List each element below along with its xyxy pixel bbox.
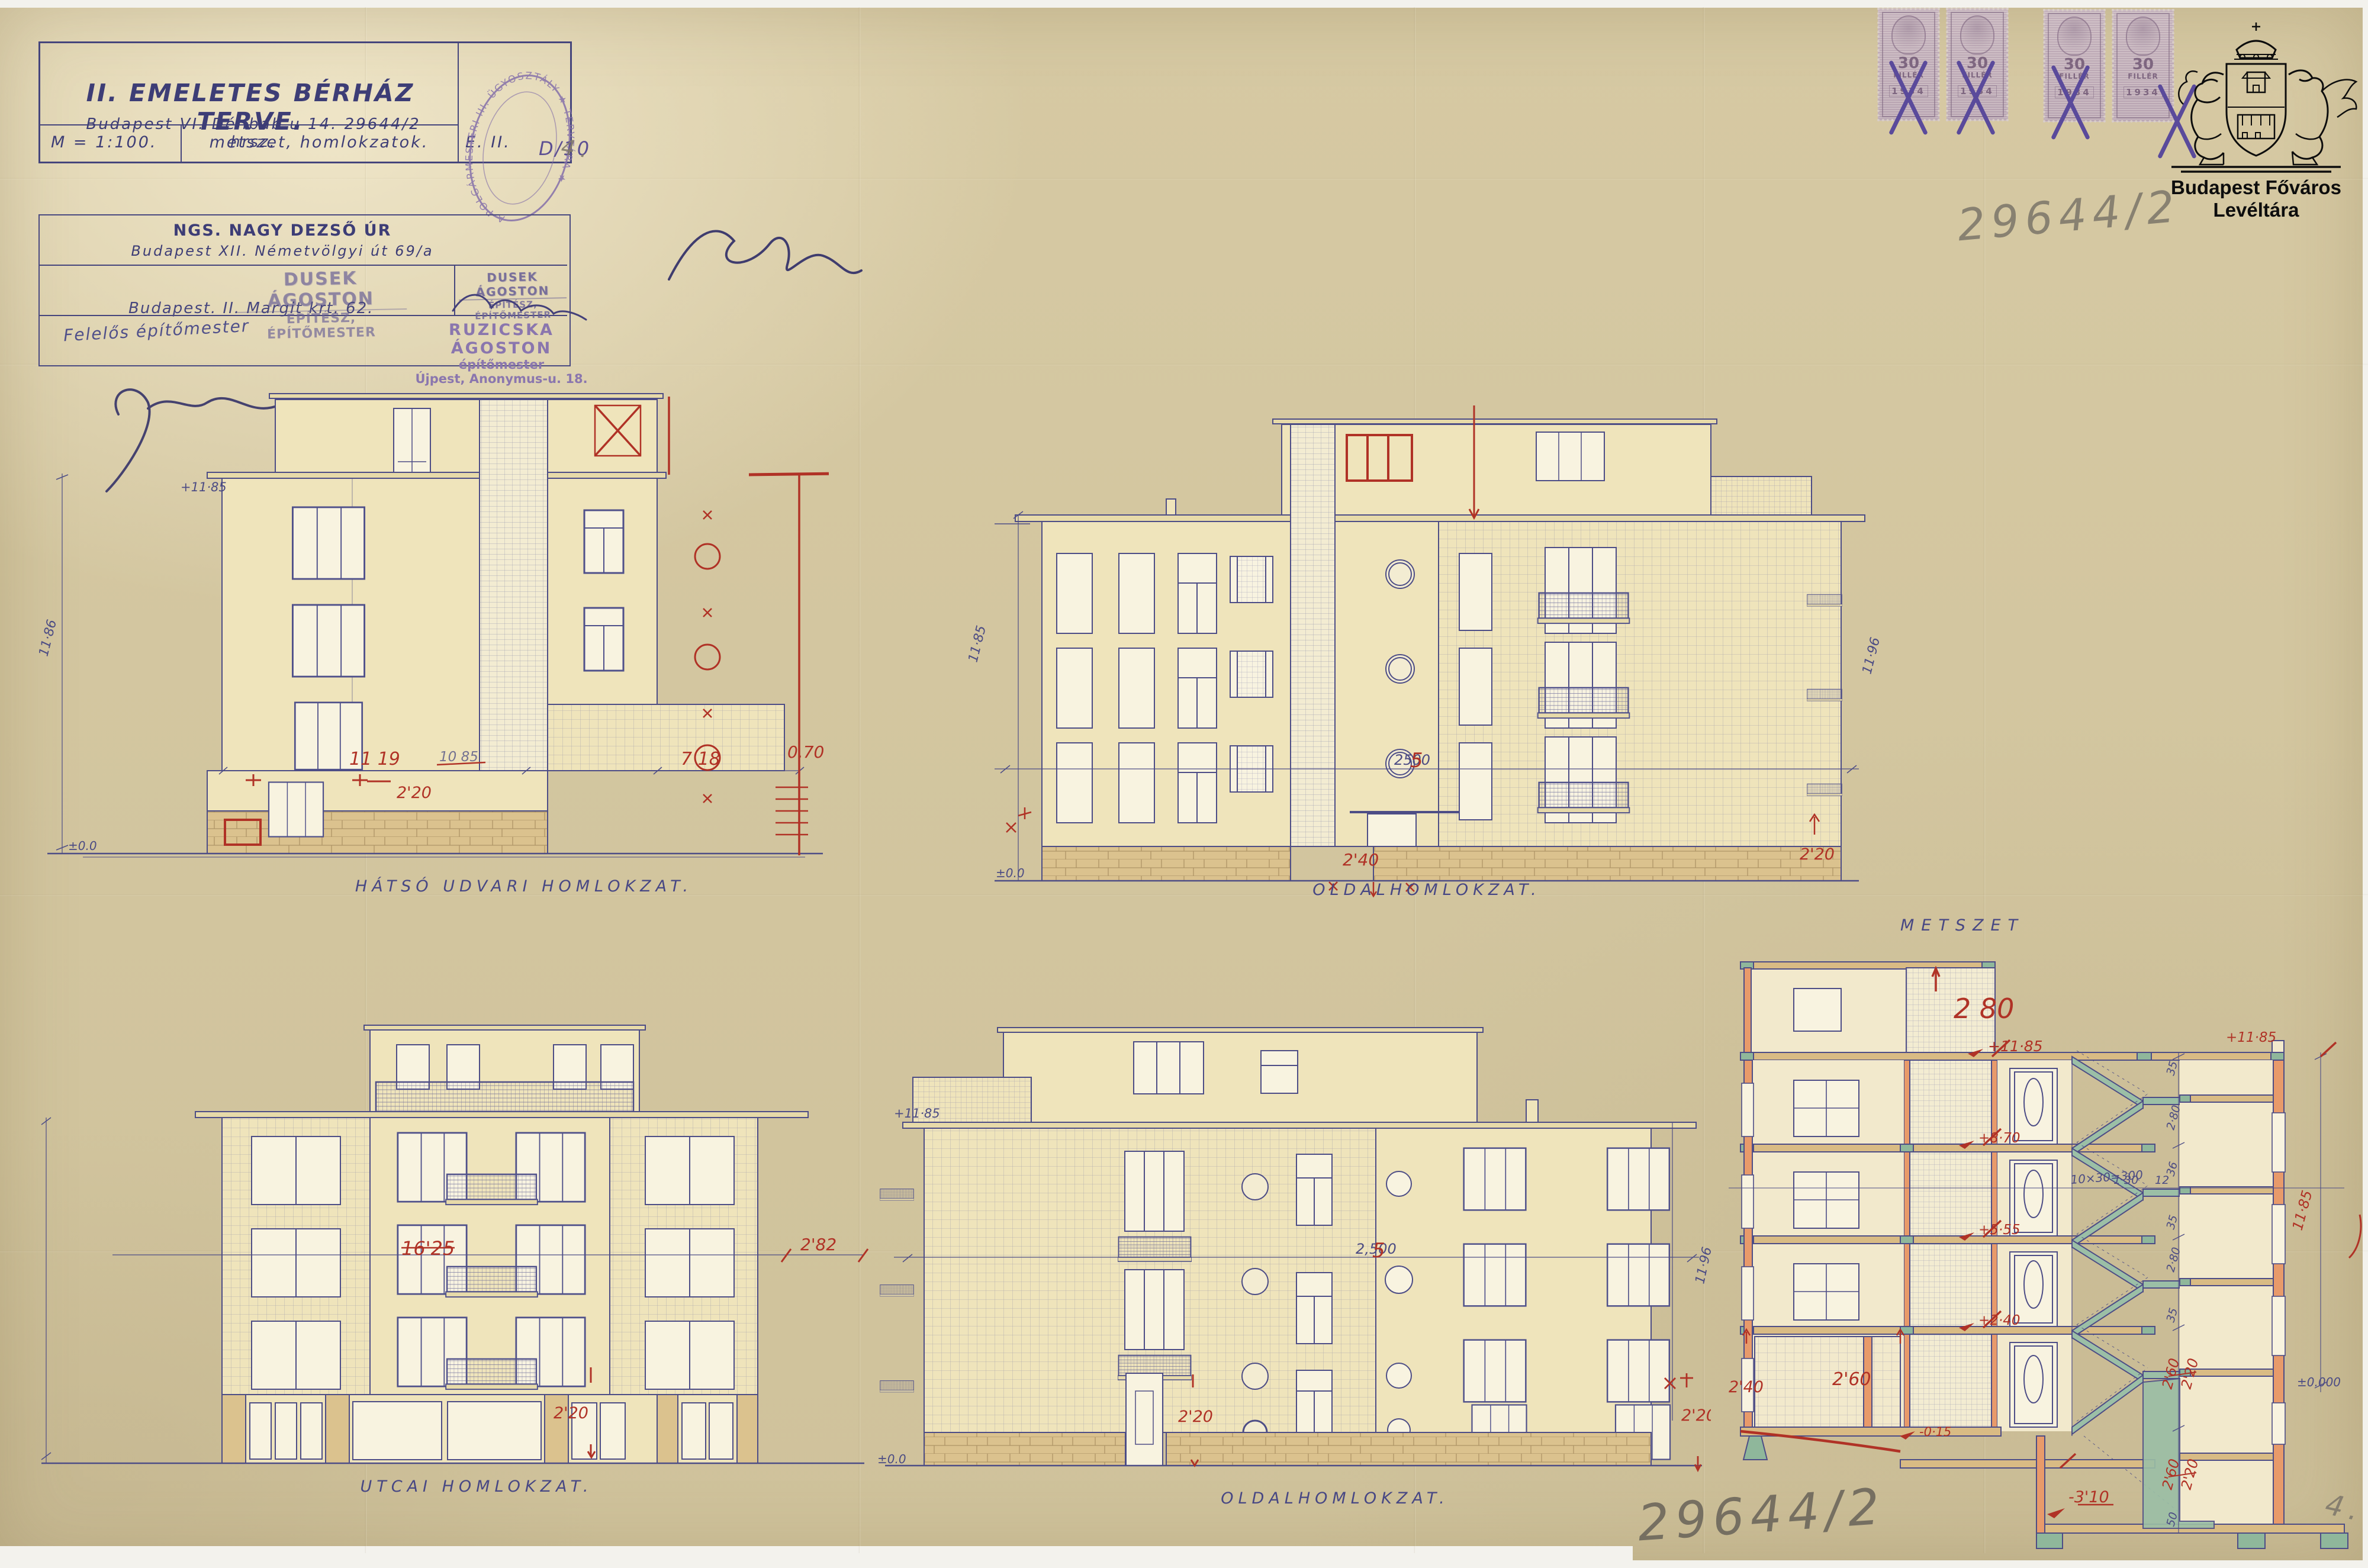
plan-scale: M = 1:100.: [51, 133, 157, 152]
street-dim-right: 2'82: [800, 1235, 836, 1254]
street-dim-shop: 2'20: [554, 1404, 588, 1422]
client-address: Budapest XII. Németvölgyi út 69/a: [111, 243, 454, 259]
section-level-top-right: +11·85: [2226, 1030, 2276, 1045]
rear-height-left: 11·86: [37, 618, 60, 658]
side-top-height-left: 11·85: [966, 624, 989, 664]
side-top-dim-right: 2'20: [1800, 845, 1835, 864]
svg-text:35: 35: [2164, 1060, 2181, 1077]
side-elevation-bottom-caption: OLDALHOMLOKZAT.: [1178, 1489, 1492, 1508]
scan-edge-top: [0, 0, 2368, 8]
rear-elevation-drawing: +11·85 11·86 ±0.0 11 19 10 85 7 18 0.70 …: [12, 373, 829, 882]
svg-text:35: 35: [2164, 1213, 2181, 1231]
pencil-sheet-number: 4.: [559, 135, 595, 163]
scanned-plan-sheet: { "archive": { "institution": "Budapest …: [0, 0, 2368, 1568]
side-elevation-bottom-drawing: +11·85 ±0.0 11·96 2,500 5 2'20 2'20: [870, 1006, 1711, 1498]
cancel-x-mark: [1886, 59, 1930, 136]
section-height-right: 11·85: [2289, 1189, 2316, 1232]
rear-dim-b: 7 18: [681, 749, 720, 769]
scan-edge-bottom-left: [0, 1546, 1633, 1568]
rear-elevation-caption: HÁTSÓ UDVARI HOMLOKZAT.: [346, 877, 702, 896]
stamp-crest: [1891, 15, 1926, 54]
section-level-ground: -0·15: [1919, 1425, 1951, 1439]
side-bottom-dim-fix: 5: [1372, 1239, 1385, 1263]
section-drawing: 2 80 +11·85 +8·70 +5·55 +2·40 -0·15 -3'1…: [1705, 935, 2368, 1551]
rear-ground-level: ±0.0: [68, 839, 97, 853]
stamp-crest: [2057, 17, 2092, 56]
section-dim-12: 12: [2155, 1174, 2169, 1187]
svg-text:35: 35: [2164, 1306, 2181, 1324]
archive-coat-of-arms: [2148, 15, 2364, 175]
side-bottom-dim-door: 2'20: [1178, 1408, 1213, 1426]
rear-level-top: +11·85: [181, 480, 227, 494]
side-elevation-top-drawing: 11·85 11·96 ±0.0 2500 5 2'40 2'20: [959, 379, 1883, 900]
section-level-basement: -3'10: [2068, 1488, 2109, 1506]
side-bottom-level-top: +11·85: [894, 1106, 940, 1121]
side-top-height-right: 11·96: [1860, 636, 1883, 675]
divider: [40, 265, 567, 266]
rear-dim-main: 11 19: [349, 749, 400, 769]
section-level-2: +5·55: [1978, 1222, 2020, 1238]
section-level-zero: ±0.000: [2297, 1375, 2341, 1389]
street-dim-main: 16'25: [401, 1237, 455, 1260]
side-top-dim-door: 2'40: [1343, 850, 1379, 870]
section-caption: METSZET: [1865, 916, 2060, 935]
side-top-ground: ±0.0: [996, 866, 1025, 880]
client-name: NGS. NAGY DEZSŐ ÚR: [111, 221, 454, 240]
cancel-x-mark: [2048, 64, 2092, 141]
side-bottom-ground: ±0.0: [877, 1452, 906, 1466]
street-elevation-drawing: 16'25 2'82 2'20: [18, 994, 870, 1486]
section-dim-260: 2'60: [1832, 1369, 1871, 1390]
architect-signature: [444, 278, 598, 331]
stamp-crest: [1960, 15, 1994, 54]
rear-dim-d: 2'20: [397, 784, 432, 802]
cancel-x-mark: [1954, 59, 1997, 136]
section-level-1: +2·40: [1978, 1313, 2020, 1328]
section-level-roof: +11·85: [1988, 1038, 2043, 1055]
section-level-3: +8·70: [1978, 1131, 2020, 1146]
client-signature: [645, 208, 882, 309]
scan-edge-bottom-right: [1633, 1561, 2368, 1568]
architect-address: Budapest. II. Margit krt. 62.: [128, 300, 374, 317]
plan-contents: metszet, homlokzatok.: [182, 133, 456, 152]
fold-crease: [0, 178, 2368, 180]
section-dim-240: 2'40: [1729, 1378, 1764, 1396]
rear-dim-c: 0.70: [787, 742, 824, 762]
section-room-height: 2 80: [1954, 993, 2014, 1025]
svg-text:36: 36: [2164, 1160, 2181, 1177]
street-elevation-caption: UTCAI HOMLOKZAT.: [323, 1477, 630, 1496]
rear-dim-old: 10 85: [439, 749, 478, 765]
side-elevation-top-caption: OLDALHOMLOKZAT.: [1273, 881, 1581, 899]
section-dim-130: 1 30: [2113, 1174, 2138, 1187]
responsible-builder-note: Felelős építőmester: [63, 316, 250, 345]
side-top-dim-fix: 5: [1410, 749, 1423, 772]
